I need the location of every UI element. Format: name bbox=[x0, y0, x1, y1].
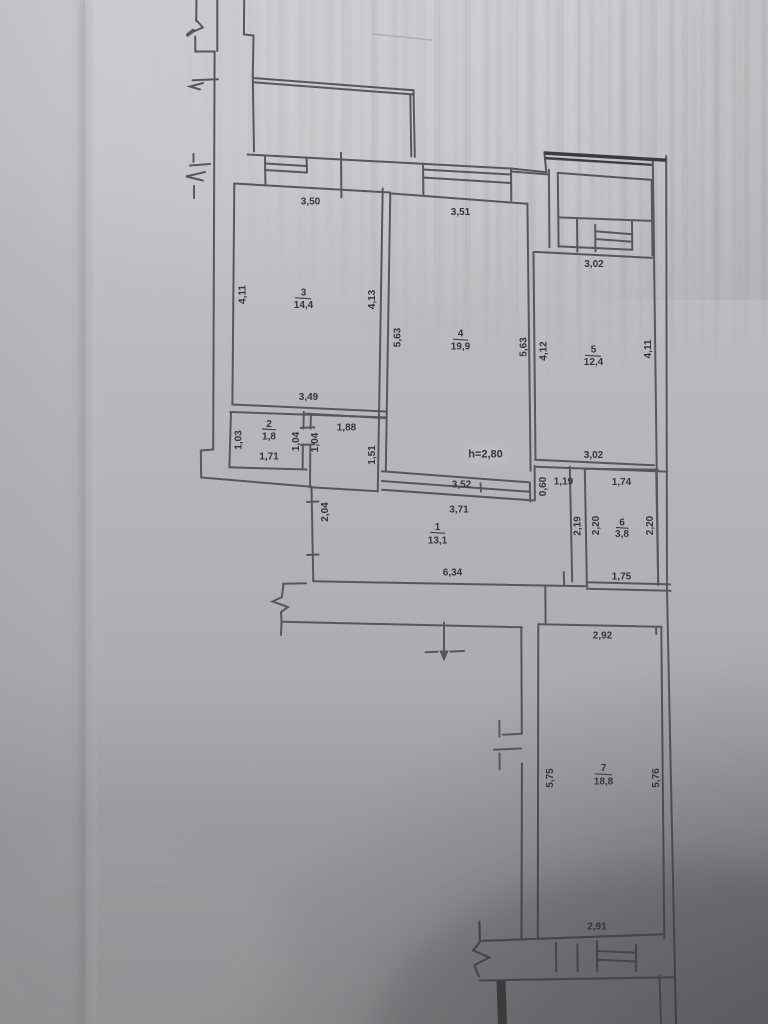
svg-text:19,9: 19,9 bbox=[451, 342, 471, 353]
svg-text:3,02: 3,02 bbox=[584, 259, 604, 270]
svg-text:14,4: 14,4 bbox=[294, 300, 314, 311]
svg-text:2: 2 bbox=[266, 419, 272, 430]
svg-text:1: 1 bbox=[435, 522, 441, 533]
svg-text:3,8: 3,8 bbox=[615, 529, 629, 540]
svg-text:2,19: 2,19 bbox=[573, 516, 584, 536]
svg-text:4: 4 bbox=[458, 329, 464, 340]
svg-text:0,60: 0,60 bbox=[538, 476, 549, 496]
svg-text:1,51: 1,51 bbox=[367, 445, 378, 465]
svg-text:18,8: 18,8 bbox=[594, 777, 614, 788]
svg-text:3: 3 bbox=[301, 288, 307, 299]
svg-text:1,71: 1,71 bbox=[259, 452, 279, 463]
svg-text:3,50: 3,50 bbox=[301, 197, 321, 208]
svg-text:2,20: 2,20 bbox=[645, 515, 656, 535]
svg-text:3,51: 3,51 bbox=[451, 207, 471, 218]
svg-text:5: 5 bbox=[591, 345, 597, 356]
svg-text:4,12: 4,12 bbox=[539, 341, 550, 361]
svg-text:2,20: 2,20 bbox=[591, 515, 602, 535]
svg-text:3,02: 3,02 bbox=[584, 450, 604, 461]
svg-text:5,75: 5,75 bbox=[545, 768, 556, 788]
svg-text:4,13: 4,13 bbox=[367, 289, 378, 309]
svg-text:5,76: 5,76 bbox=[651, 768, 662, 788]
svg-text:1,04: 1,04 bbox=[310, 432, 321, 452]
svg-text:1,8: 1,8 bbox=[262, 432, 276, 443]
svg-text:5,63: 5,63 bbox=[393, 327, 404, 347]
svg-text:13,1: 13,1 bbox=[428, 536, 448, 547]
svg-text:6: 6 bbox=[619, 518, 625, 529]
svg-text:4,11: 4,11 bbox=[238, 285, 249, 304]
svg-text:h=2,80: h=2,80 bbox=[468, 449, 503, 461]
svg-text:4,11: 4,11 bbox=[643, 339, 654, 358]
svg-text:3,52: 3,52 bbox=[452, 480, 472, 491]
svg-text:2,91: 2,91 bbox=[587, 922, 607, 933]
svg-text:1,04: 1,04 bbox=[291, 431, 302, 451]
svg-text:1,88: 1,88 bbox=[337, 423, 357, 434]
svg-text:3,49: 3,49 bbox=[299, 392, 319, 403]
svg-text:3,71: 3,71 bbox=[449, 505, 469, 516]
svg-text:6,34: 6,34 bbox=[443, 568, 463, 579]
svg-text:1,19: 1,19 bbox=[554, 477, 574, 488]
svg-text:12,4: 12,4 bbox=[584, 357, 604, 368]
svg-text:1,75: 1,75 bbox=[612, 572, 632, 583]
svg-text:2,04: 2,04 bbox=[320, 502, 331, 522]
svg-text:1,74: 1,74 bbox=[612, 477, 632, 488]
svg-text:5,63: 5,63 bbox=[519, 337, 530, 357]
svg-text:2,92: 2,92 bbox=[593, 631, 613, 642]
svg-text:1,03: 1,03 bbox=[234, 430, 245, 450]
svg-text:7: 7 bbox=[601, 763, 607, 774]
